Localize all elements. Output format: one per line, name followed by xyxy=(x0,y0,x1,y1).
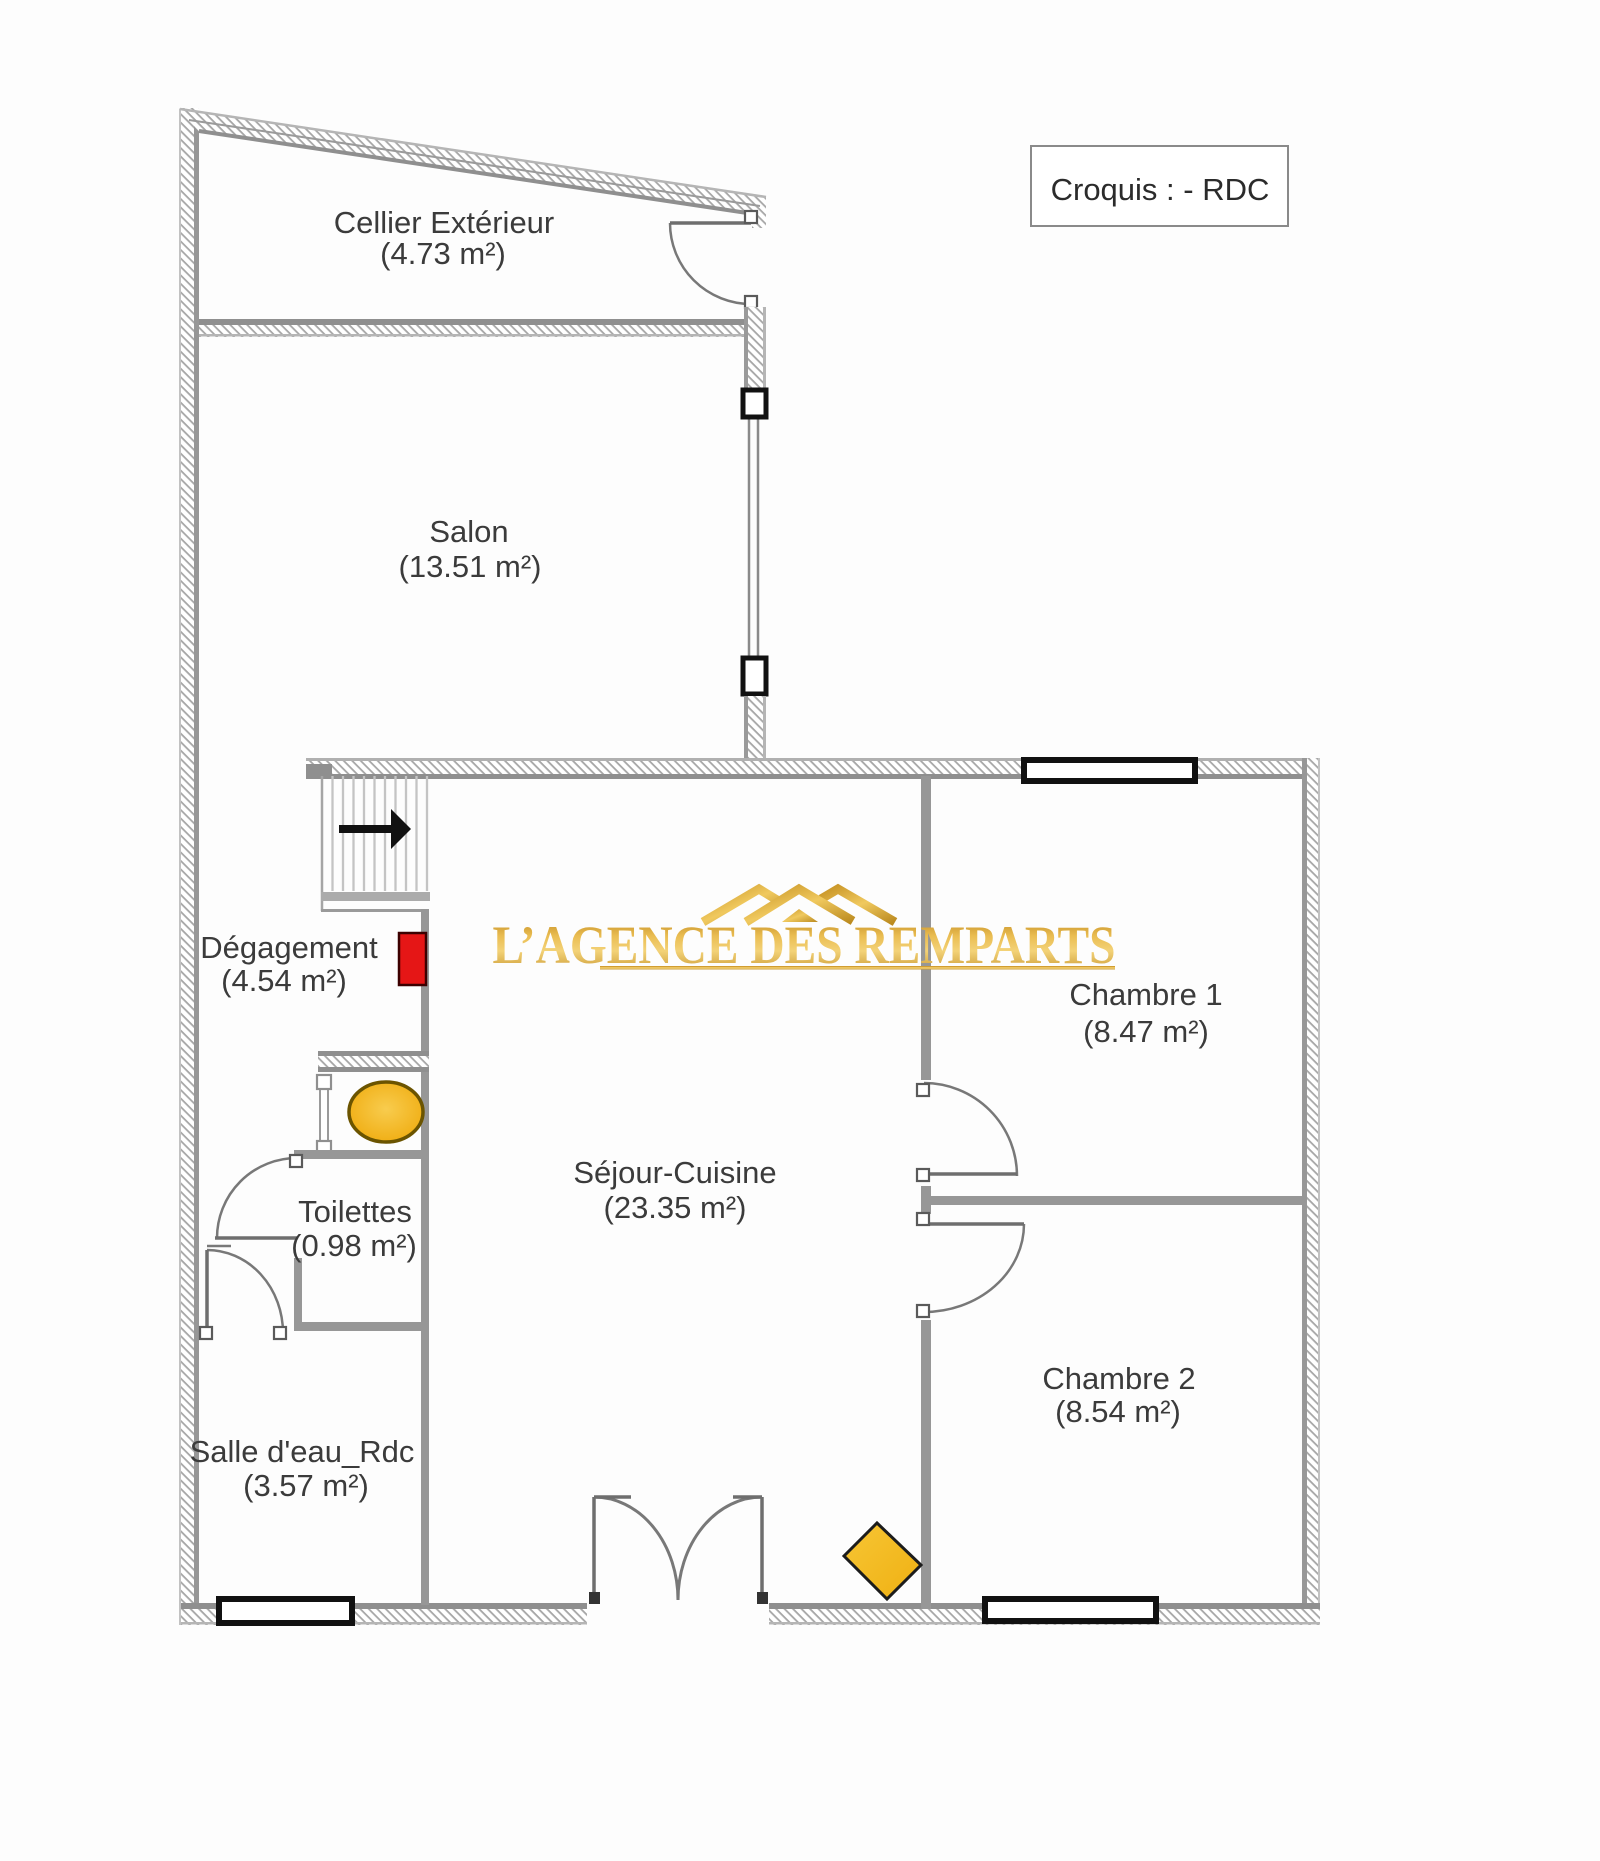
svg-text:Chambre 2: Chambre 2 xyxy=(1042,1361,1195,1396)
svg-text:(13.51 m²): (13.51 m²) xyxy=(399,549,542,584)
svg-text:(3.57 m²): (3.57 m²) xyxy=(243,1468,369,1503)
svg-text:Toilettes: Toilettes xyxy=(298,1194,412,1229)
svg-text:Croquis : - RDC: Croquis : - RDC xyxy=(1051,172,1270,207)
svg-text:Séjour-Cuisine: Séjour-Cuisine xyxy=(573,1155,776,1190)
svg-text:Salon: Salon xyxy=(429,514,508,549)
svg-text:Dégagement: Dégagement xyxy=(200,930,378,965)
svg-text:(0.98 m²): (0.98 m²) xyxy=(291,1228,417,1263)
svg-text:(4.73 m²): (4.73 m²) xyxy=(380,236,506,271)
svg-text:(4.54 m²): (4.54 m²) xyxy=(221,963,347,998)
svg-text:(8.54 m²): (8.54 m²) xyxy=(1055,1394,1181,1429)
svg-text:(8.47 m²): (8.47 m²) xyxy=(1083,1014,1209,1049)
svg-text:Chambre 1: Chambre 1 xyxy=(1069,977,1222,1012)
svg-text:(23.35 m²): (23.35 m²) xyxy=(604,1190,747,1225)
svg-text:Cellier Extérieur: Cellier Extérieur xyxy=(334,205,555,240)
svg-text:Salle d'eau_Rdc: Salle d'eau_Rdc xyxy=(190,1434,415,1469)
